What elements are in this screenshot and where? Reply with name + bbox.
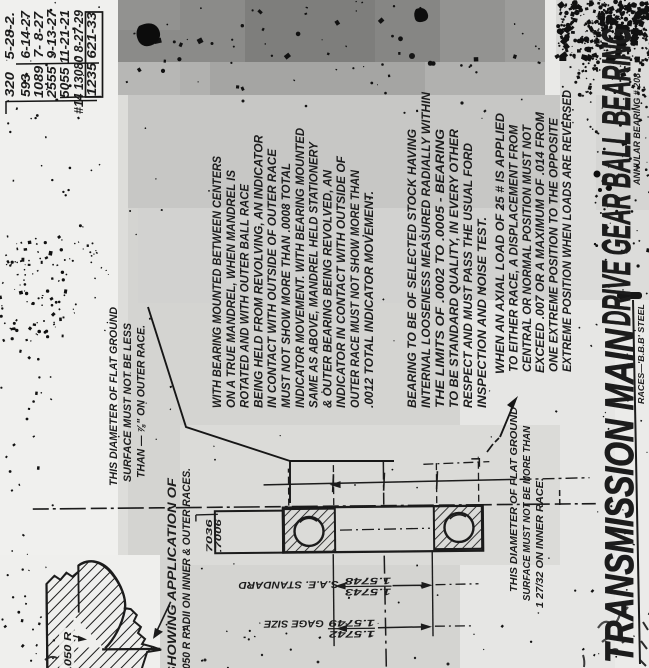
svg-text:GAGE SIZE: GAGE SIZE — [263, 617, 323, 629]
svg-text:RACES—'B.B.B' STEEL: RACES—'B.B.B' STEEL — [636, 304, 646, 404]
svg-text:593 6-14-27: 593 6-14-27 — [19, 10, 33, 97]
svg-text:1 27/32 ON INNER RACE.: 1 27/32 ON INNER RACE. — [535, 478, 546, 608]
svg-text:ON A TRUE MANDREL, WHEN MANDRE: ON A TRUE MANDREL, WHEN MANDREL IS — [224, 170, 238, 408]
svg-text:OUTER RACE MUST NOT SHOW MORE: OUTER RACE MUST NOT SHOW MORE THAN — [348, 170, 362, 408]
svg-text:THE LIMITS OF .0002 TO .0005 -: THE LIMITS OF .0002 TO .0005 - BEARING — [433, 129, 447, 408]
svg-text:BEARING TO BE OF SELECTED STOC: BEARING TO BE OF SELECTED STOCK HAVING — [405, 129, 419, 408]
svg-text:.050 R RADII ON INNER & OUTER: .050 R RADII ON INNER & OUTER RACES. — [181, 468, 193, 668]
svg-text:MUST NOT SHOW MORE THAN .0008: MUST NOT SHOW MORE THAN .0008 TOTAL — [279, 163, 293, 408]
svg-text:320 5-28-2.: 320 5-28-2. — [3, 12, 17, 97]
svg-text:THIS DIAMETER OF FLAT GROUND: THIS DIAMETER OF FLAT GROUND — [108, 307, 120, 486]
svg-text:EXCEED .007 OR A MAXIMUM OF .0: EXCEED .007 OR A MAXIMUM OF .014 FROM — [533, 111, 547, 373]
svg-text:1.5743: 1.5743 — [344, 586, 391, 597]
svg-text:S.A.E. STANDARD: S.A.E. STANDARD — [238, 578, 338, 590]
svg-text:2555 9-13-27: 2555 9-13-27 — [45, 9, 59, 99]
svg-text:THAN — ⅞" ON OUTER RACE.: THAN — ⅞" ON OUTER RACE. — [136, 325, 148, 478]
svg-text:5055 11-21-21: 5055 11-21-21 — [58, 10, 72, 98]
svg-text:.7006: .7006 — [213, 519, 223, 553]
svg-text:TO BE STANDARD QUALITY, IN EVE: TO BE STANDARD QUALITY, IN EVERY OTHER — [447, 129, 461, 408]
svg-text:WHEN AN AXIAL LOAD OF 25 # IS: WHEN AN AXIAL LOAD OF 25 # IS APPLIED — [493, 113, 507, 374]
svg-text:1235 621-33: 1235 621-33 — [85, 12, 99, 96]
svg-text:INTERNAL LOOSENESS MEASURED RA: INTERNAL LOOSENESS MEASURED RADIALLY WIT… — [419, 92, 433, 408]
svg-text:TO EITHER RACE, A DISPLACEMENT: TO EITHER RACE, A DISPLACEMENT FROM — [506, 124, 520, 372]
svg-text:WITH BEARING MOUNTED BETWEEN C: WITH BEARING MOUNTED BETWEEN CENTERS — [210, 156, 224, 408]
svg-text:EXTREME POSITION WHEN LOADS AR: EXTREME POSITION WHEN LOADS ARE REVERSED — [560, 90, 574, 372]
svg-text:CENTRAL OR NORMAL POSITION MUS: CENTRAL OR NORMAL POSITION MUST NOT — [520, 123, 534, 372]
svg-text:1.5748: 1.5748 — [344, 575, 391, 586]
svg-text:1.5742: 1.5742 — [328, 628, 375, 639]
svg-text:INDICATOR IN CONTACT WITH OUTS: INDICATOR IN CONTACT WITH OUTSIDE OF — [334, 155, 348, 408]
svg-text:ANNULAR BEARING # 208: ANNULAR BEARING # 208 — [632, 73, 642, 186]
svg-text:1089 7- 8-27: 1089 7- 8-27 — [32, 11, 46, 98]
svg-text:ONE EXTREME POSITION TO THE OP: ONE EXTREME POSITION TO THE OPPOSITE — [547, 117, 561, 372]
svg-text:.0012 TOTAL INDICATOR MOVEMENT: .0012 TOTAL INDICATOR MOVEMENT. — [362, 191, 376, 408]
svg-text:.050 R: .050 R — [63, 631, 74, 668]
svg-text:SAME AS ABOVE, MANDREL HELD ST: SAME AS ABOVE, MANDREL HELD STATIONERY — [307, 141, 321, 408]
svg-text:SURFACE MUST NOT BE MORE THAN: SURFACE MUST NOT BE MORE THAN — [522, 425, 533, 601]
svg-text:THIS DIAMETER OF FLAT GROUND: THIS DIAMETER OF FLAT GROUND — [508, 407, 520, 592]
svg-text:1.5749: 1.5749 — [328, 617, 375, 628]
svg-text:SURFACE MUST NOT BE LESS: SURFACE MUST NOT BE LESS — [122, 322, 134, 482]
svg-text:INDICATOR MOVEMENT. WITH BEARI: INDICATOR MOVEMENT. WITH BEARING MOUNTED — [293, 128, 307, 408]
svg-text:ROTATED AND WITH OUTER BALL RA: ROTATED AND WITH OUTER BALL RACE — [238, 183, 252, 408]
svg-text:#14 13080 8-27-29: #14 13080 8-27-29 — [72, 10, 86, 114]
svg-text:RESPECT AND MUST PASS THE USUA: RESPECT AND MUST PASS THE USUAL FORD — [461, 143, 475, 408]
svg-text:IN CONTACT WITH OUTSIDE OF OUT: IN CONTACT WITH OUTSIDE OF OUTER RACE — [265, 148, 279, 408]
svg-text:SHOWING APPLICATION OF: SHOWING APPLICATION OF — [165, 477, 179, 668]
svg-text:& OUTER BEARING BEING REVOLVED: & OUTER BEARING BEING REVOLVED, AN — [320, 170, 334, 408]
svg-text:BEING HELD FROM REVOLVING, AN: BEING HELD FROM REVOLVING, AN INDICATOR — [251, 135, 265, 408]
svg-text:INSPECTION AND NOISE TEST.: INSPECTION AND NOISE TEST. — [475, 217, 489, 408]
